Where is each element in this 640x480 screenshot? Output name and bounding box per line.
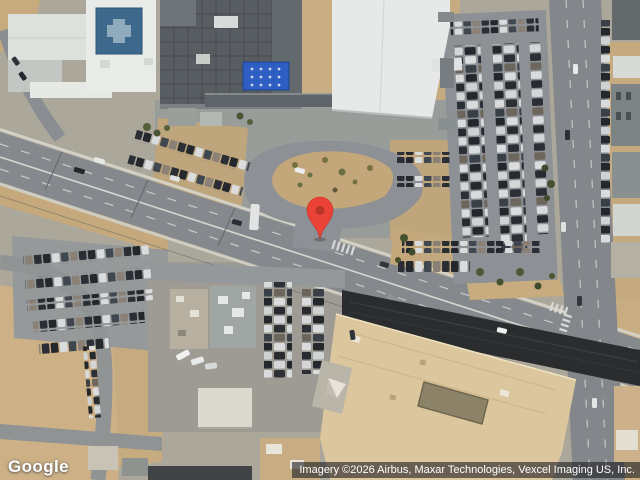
building (8, 14, 86, 60)
attribution-text: Imagery ©2026 Airbus, Maxar Technologies… (299, 464, 635, 476)
east-edge-buildings (611, 0, 640, 462)
attribution-bar: Imagery ©2026 Airbus, Maxar Technologies… (292, 462, 640, 478)
parking-row (398, 261, 470, 272)
parking-row (396, 176, 450, 187)
building (88, 446, 118, 470)
google-logo[interactable]: Google (8, 458, 69, 475)
marker-dot (315, 206, 324, 215)
street-parking-column (601, 20, 612, 244)
entrance-canopy (205, 94, 333, 107)
blue-rooftop-panel (243, 62, 289, 90)
parking-column (302, 288, 324, 374)
dark-grid-roof-building (160, 0, 302, 109)
building (122, 458, 148, 476)
small-building (168, 108, 196, 126)
shuttle-bus (249, 204, 260, 231)
building (198, 388, 252, 428)
parking-row (402, 241, 540, 253)
building (170, 289, 208, 349)
small-building (200, 112, 222, 126)
loop-island (272, 151, 393, 208)
parking-column (264, 282, 292, 378)
parking-row (396, 152, 450, 163)
satellite-map-canvas[interactable] (0, 0, 640, 480)
satellite-imagery (0, 0, 640, 480)
building (148, 466, 252, 480)
map-embed: Google Imagery ©2026 Airbus, Maxar Techn… (0, 0, 640, 480)
